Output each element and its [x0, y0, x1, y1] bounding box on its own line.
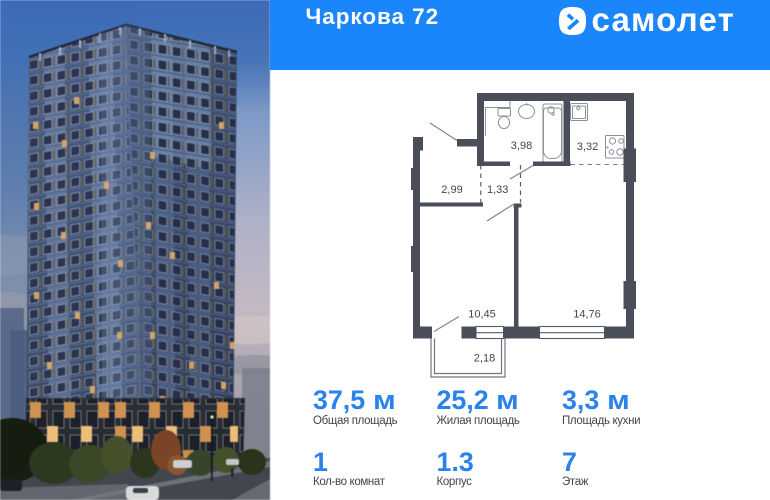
svg-text:10,45: 10,45 — [468, 309, 496, 321]
svg-text:2,99: 2,99 — [441, 184, 462, 196]
svg-text:2,18: 2,18 — [474, 353, 495, 365]
svg-text:3,98: 3,98 — [511, 140, 532, 152]
svg-text:3,32: 3,32 — [577, 141, 598, 153]
svg-text:1,33: 1,33 — [487, 184, 508, 196]
svg-text:14,76: 14,76 — [573, 309, 601, 321]
